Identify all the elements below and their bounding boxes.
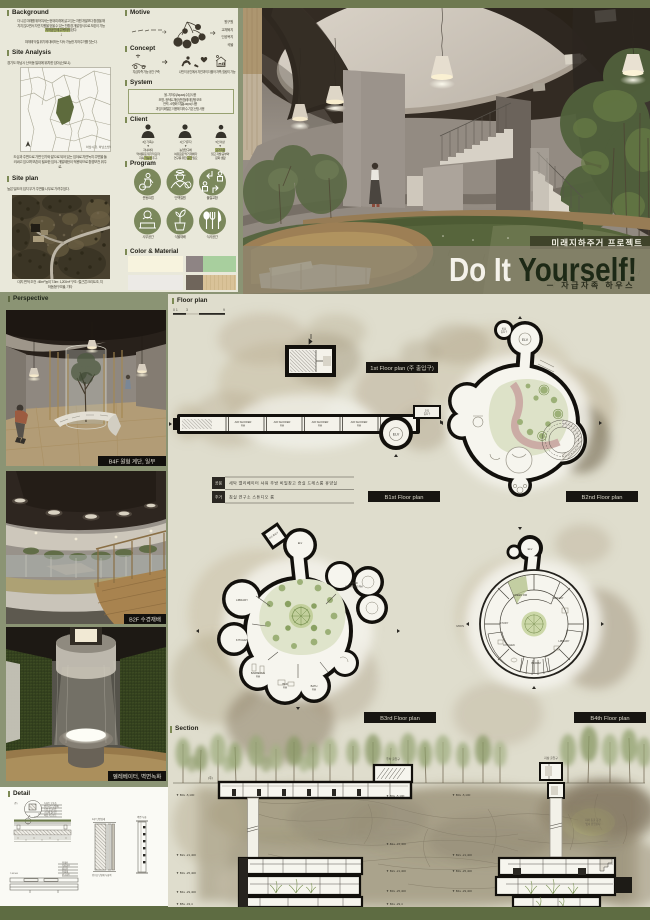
svg-text:▼ B2s -21,400: ▼ B2s -21,400 <box>176 853 196 857</box>
svg-text:MOIS: MOIS <box>456 624 464 628</box>
svg-text:AIR SHOWER: AIR SHOWER <box>312 420 329 424</box>
svg-text:▼ B2s -21,400: ▼ B2s -21,400 <box>386 869 406 873</box>
svg-text:LIBRARY: LIBRARY <box>236 598 248 602</box>
svg-text:(주): (주) <box>208 776 213 780</box>
svg-text:9: 9 <box>223 308 225 312</box>
svg-text:A부 단면상세: A부 단면상세 <box>92 817 105 821</box>
svg-text:공용: 공용 <box>215 481 223 486</box>
svg-text:▼ B3s -25,400: ▼ B3s -25,400 <box>176 871 196 875</box>
svg-text:RM: RM <box>283 686 287 690</box>
svg-text:RM: RM <box>312 688 316 692</box>
svg-text:녹화토 보호층: 녹화토 보호층 <box>44 801 57 805</box>
svg-text:STUDY: STUDY <box>500 621 509 625</box>
svg-text:▼ B5s -33,4: ▼ B5s -33,4 <box>176 902 193 906</box>
svg-text:BEDRM: BEDRM <box>531 661 540 665</box>
svg-text:KITCHEN: KITCHEN <box>236 638 248 642</box>
svg-text:주차 출입구: 주차 출입구 <box>386 757 400 761</box>
svg-text:LIBRARY: LIBRARY <box>552 596 563 600</box>
svg-text:B2F 수경재배: B2F 수경재배 <box>129 615 161 623</box>
svg-text:하남시청, 하남소방서: 하남시청, 하남소방서 <box>86 144 111 149</box>
svg-text:▼ B4s -29,400: ▼ B4s -29,400 <box>452 889 472 893</box>
svg-text:(주): (주) <box>14 801 18 805</box>
svg-text:B4th Floor plan: B4th Floor plan <box>590 716 629 722</box>
svg-text:AIR SHOWER: AIR SHOWER <box>235 420 252 424</box>
svg-text:▼ B0s -5,100: ▼ B0s -5,100 <box>452 793 471 797</box>
svg-text:3: 3 <box>186 308 188 312</box>
svg-text:주거: 주거 <box>215 494 223 500</box>
svg-text:▼ B1s -15,400: ▼ B1s -15,400 <box>386 842 406 846</box>
svg-text:RM: RM <box>357 424 361 428</box>
svg-text:▼ B2s -21,400: ▼ B2s -21,400 <box>452 853 472 857</box>
svg-text:침실 연구소 스튜디오 룸: 침실 연구소 스튜디오 룸 <box>229 494 274 500</box>
svg-text:RM: RM <box>256 675 260 679</box>
svg-text:▼ B0s -5,100: ▼ B0s -5,100 <box>386 794 405 798</box>
svg-text:AIR SHOWER: AIR SHOWER <box>351 420 368 424</box>
svg-text:▼ B4s -29,4: ▼ B4s -29,4 <box>386 902 403 906</box>
svg-text:엘레베이터, 벽면녹화: 엘레베이터, 벽면녹화 <box>113 772 162 780</box>
svg-text:ELV: ELV <box>393 433 400 437</box>
svg-text:▼ B3s -25,400: ▼ B3s -25,400 <box>386 889 406 893</box>
svg-text:1st Floor plan (주 출입구): 1st Floor plan (주 출입구) <box>370 364 434 372</box>
svg-text:▼ B3s -25,400: ▼ B3s -25,400 <box>452 869 472 873</box>
svg-text:GREEN RM: GREEN RM <box>513 593 527 597</box>
svg-text:ELV: ELV <box>298 542 303 545</box>
svg-text:목재판: 목재판 <box>62 860 68 864</box>
svg-text:AIR SHOWER: AIR SHOWER <box>274 420 291 424</box>
svg-text:BATH: BATH <box>311 684 318 688</box>
svg-text:T-M 500: T-M 500 <box>10 873 19 875</box>
svg-text:지상 출입구: 지상 출입구 <box>544 756 558 760</box>
svg-text:－ 자급자족 하우스: － 자급자족 하우스 <box>546 280 635 290</box>
svg-text:B3rd Floor plan: B3rd Floor plan <box>380 716 420 722</box>
svg-text:벽면 녹화: 벽면 녹화 <box>137 815 147 819</box>
svg-text:LIBRARY: LIBRARY <box>558 639 569 643</box>
svg-text:ELV: ELV <box>522 338 529 342</box>
svg-text:▼ B0s -5,100: ▼ B0s -5,100 <box>176 793 195 797</box>
svg-text:0 1: 0 1 <box>173 308 178 312</box>
svg-text:출입구: 출입구 <box>501 330 508 334</box>
svg-text:B2nd Floor plan: B2nd Floor plan <box>582 495 623 501</box>
svg-text:STORAGE RM: STORAGE RM <box>345 585 362 589</box>
svg-text:B4F 원형 계단, 일부: B4F 원형 계단, 일부 <box>109 457 156 465</box>
svg-text:세탁 엘리베이터 샤워 주방 비밀창고 증실 드레스룸 휴양: 세탁 엘리베이터 샤워 주방 비밀창고 증실 드레스룸 휴양실 <box>229 480 338 486</box>
svg-text:방수층 단열재 녹화벽: 방수층 단열재 녹화벽 <box>92 873 111 877</box>
svg-text:B1st Floor plan: B1st Floor plan <box>385 495 424 501</box>
svg-text:FOOD: FOOD <box>350 581 358 585</box>
svg-text:KITCHEN: KITCHEN <box>503 643 515 647</box>
svg-text:▼ B4s -29,400: ▼ B4s -29,400 <box>176 890 196 894</box>
svg-text:RM: RM <box>280 424 284 428</box>
svg-text:RM: RM <box>318 424 322 428</box>
svg-text:RM: RM <box>241 424 245 428</box>
svg-text:출입구: 출입구 <box>424 412 431 416</box>
svg-text:ELV: ELV <box>528 547 533 551</box>
